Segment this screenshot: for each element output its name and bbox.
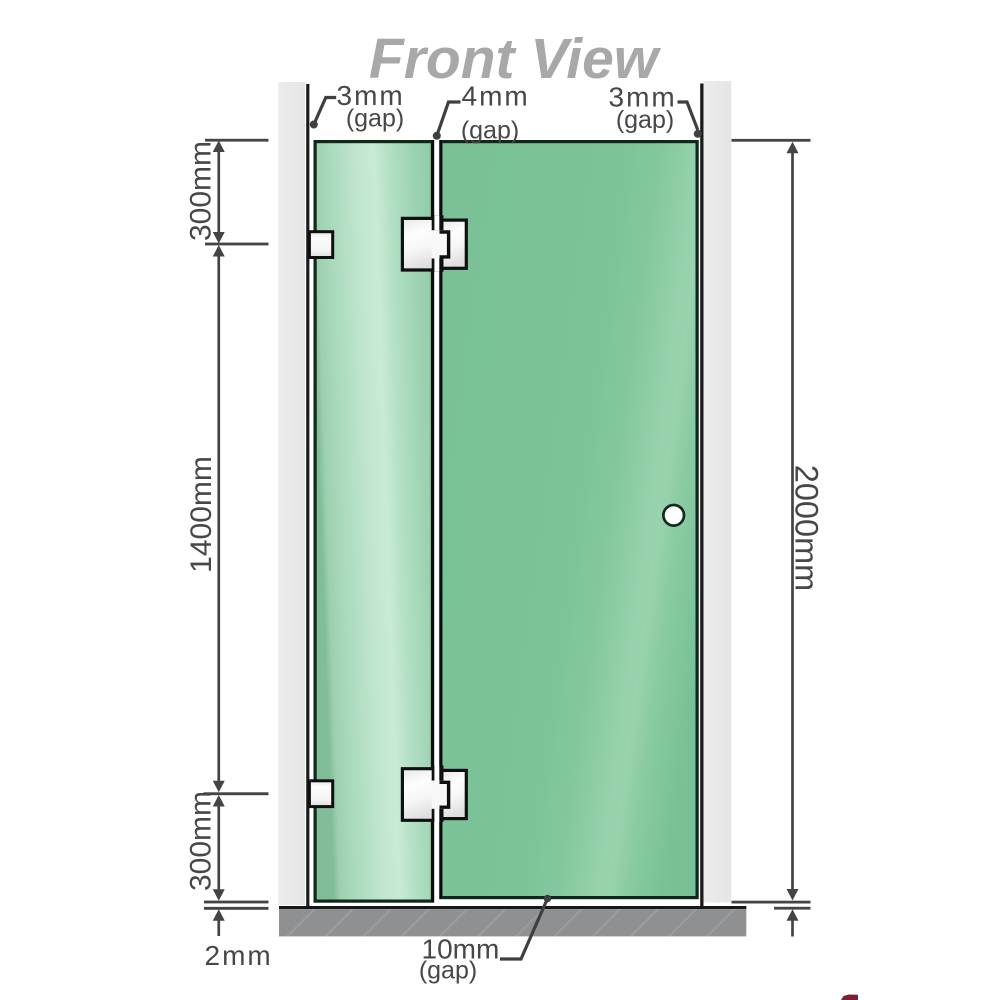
svg-text:(gap): (gap) [419, 957, 477, 985]
svg-text:(gap): (gap) [616, 106, 674, 134]
svg-text:(gap): (gap) [461, 117, 519, 145]
svg-text:300mm: 300mm [185, 791, 218, 891]
svg-text:2000mm: 2000mm [789, 465, 825, 591]
svg-text:1400mm: 1400mm [185, 456, 218, 573]
svg-text:(gap): (gap) [346, 105, 404, 133]
svg-text:300mm: 300mm [185, 141, 218, 241]
svg-text:4mm: 4mm [462, 81, 530, 112]
svg-text:2mm: 2mm [205, 940, 273, 971]
